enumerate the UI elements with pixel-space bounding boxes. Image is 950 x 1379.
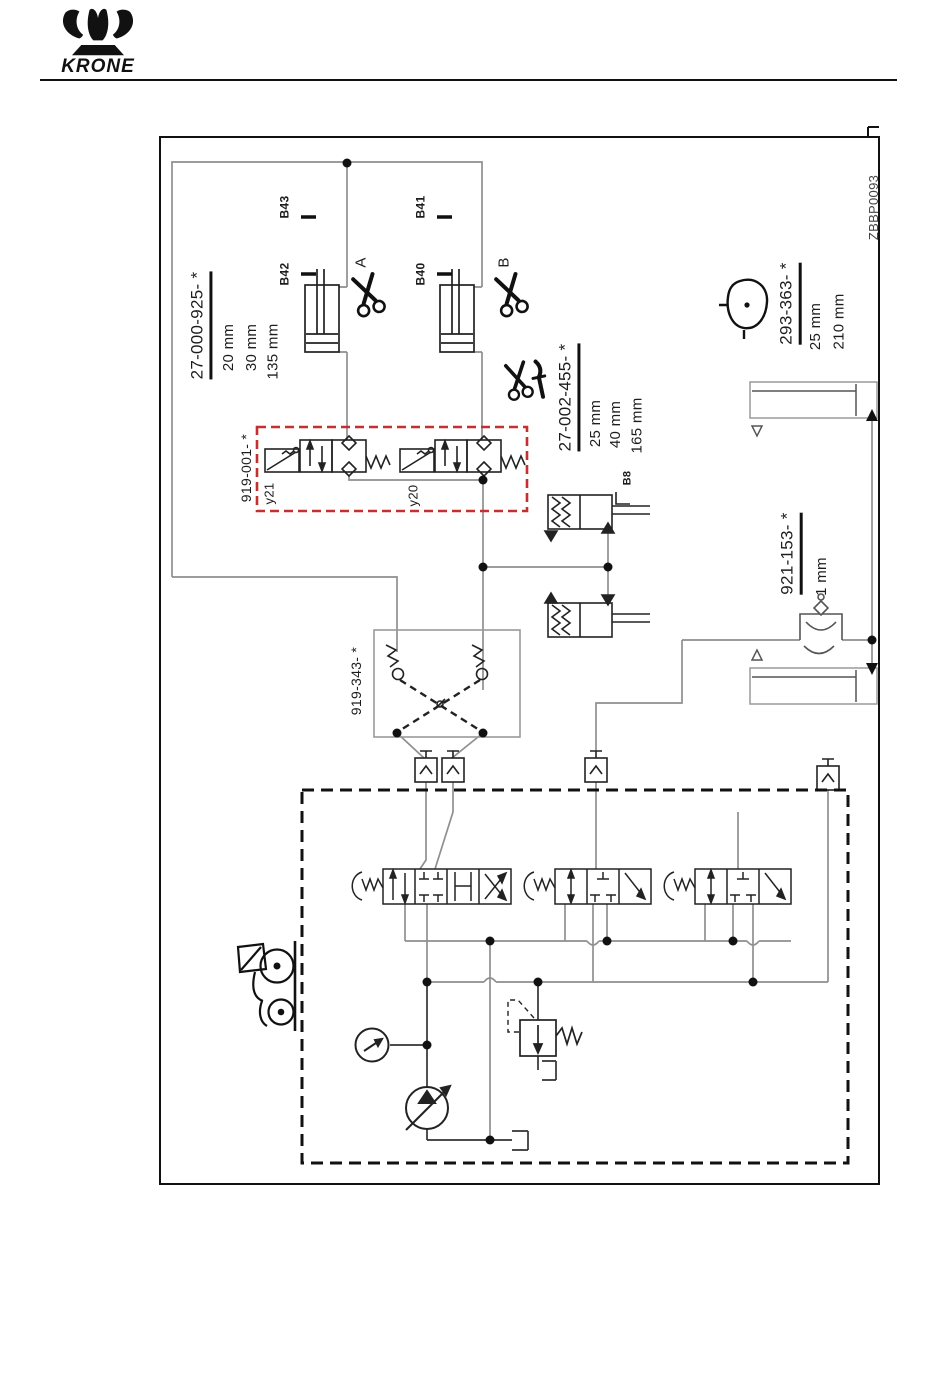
cylinder-a xyxy=(305,269,339,352)
part-label-919-001: 919-001- * xyxy=(232,424,260,512)
relief-valve xyxy=(508,1000,582,1056)
cylinder-b xyxy=(440,269,474,352)
pump-tank-lines xyxy=(390,982,538,1140)
knife-cylinder-b8 xyxy=(545,492,650,541)
part-label-919-343: 919-343- * xyxy=(342,635,370,727)
dim-135mm: 135 mm xyxy=(258,316,288,386)
sensor-label-b42: B42 xyxy=(272,258,296,290)
solenoid-label-y21: y21 xyxy=(257,473,281,513)
hydraulic-schematic xyxy=(0,0,950,1379)
tractor-boundary xyxy=(302,790,848,1163)
sensor-label-b43: B43 xyxy=(272,191,296,223)
drawing-number: ZBBP0093 xyxy=(860,147,888,267)
coupler-2 xyxy=(442,751,464,782)
sensor-label-b41: B41 xyxy=(408,191,432,223)
dim-165mm: 165 mm xyxy=(622,391,652,459)
control-valve-3 xyxy=(664,869,791,904)
sensor-label-b8: B8 xyxy=(616,466,638,490)
tractor-icon xyxy=(238,941,295,1031)
scissors-icon-a xyxy=(350,273,386,317)
pickup-cylinder-top xyxy=(750,382,878,436)
solenoid-valve-y20 xyxy=(400,436,525,476)
quick-couplers xyxy=(415,751,839,790)
coupler-3 xyxy=(585,751,607,782)
solenoid-label-y20: y20 xyxy=(401,475,425,515)
sensor-label-b40: B40 xyxy=(408,258,432,290)
pickup-cylinder-bottom xyxy=(750,650,878,704)
control-valve-1 xyxy=(352,869,511,904)
coupler-4 xyxy=(817,759,839,790)
tank-symbol xyxy=(512,1061,556,1150)
manual-page: KRONE xyxy=(0,0,950,1379)
scissors-icon-b xyxy=(493,273,529,317)
control-valve-2 xyxy=(524,869,651,904)
solenoid-valve-y21 xyxy=(265,436,390,476)
coupler-1 xyxy=(415,751,437,782)
knife-cylinder-2 xyxy=(545,593,650,637)
check-valve-block-919-343 xyxy=(374,630,520,737)
dim-210mm: 210 mm xyxy=(824,288,854,354)
port-label-b: B xyxy=(493,250,515,274)
gauge-icon xyxy=(356,1029,389,1062)
port-label-a: A xyxy=(350,250,372,274)
pump-icon xyxy=(406,1086,450,1130)
dim-1mm: 1 mm xyxy=(806,552,836,600)
